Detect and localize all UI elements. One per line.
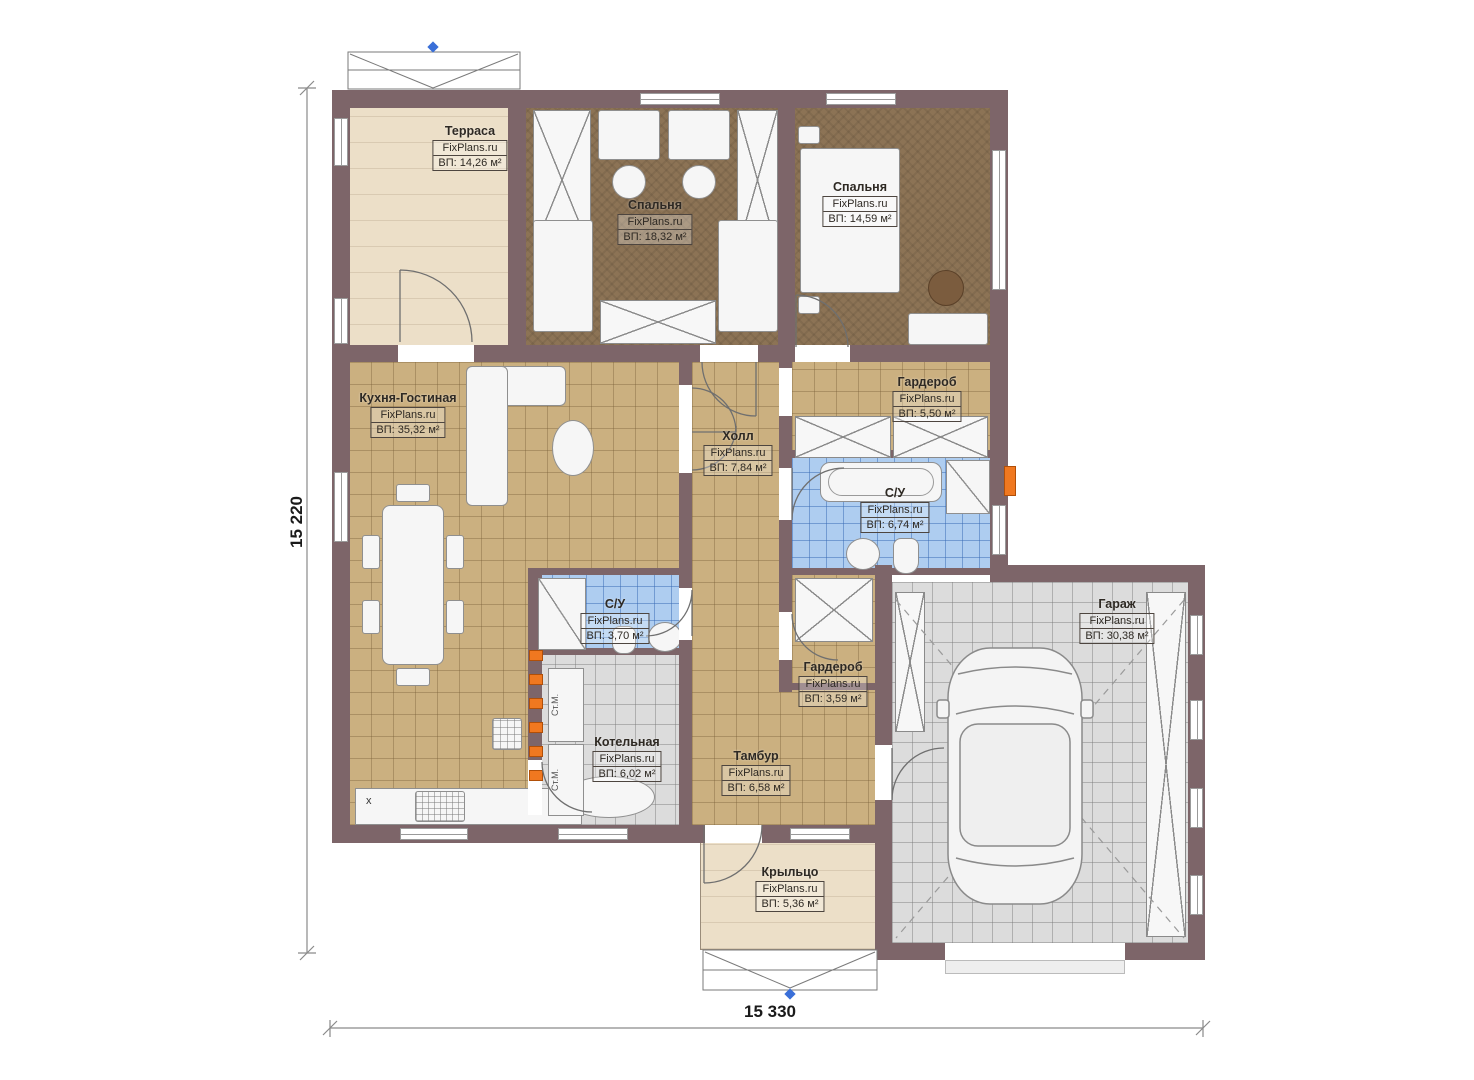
desk-bedroom1-left [598, 110, 660, 160]
door-opening-boiler [528, 760, 542, 815]
desk-bedroom1-right [668, 110, 730, 160]
room-label-vestibule: Тамбур FixPlans.ruВП: 6,58 м² [721, 749, 790, 796]
room-label-bathroom-2: С/У FixPlans.ruВП: 3,70 м² [580, 597, 649, 644]
room-label-terrace: Терраса FixPlans.ruВП: 14,26 м² [432, 124, 507, 171]
closet-wardrobe1-right [893, 416, 988, 458]
dining-chair-top [396, 484, 430, 502]
garage-apron [945, 960, 1125, 974]
sofa-side [466, 366, 508, 506]
door-opening-bath1 [779, 468, 792, 520]
window-bath1-right [992, 505, 1006, 555]
chair-bedroom1-right [682, 165, 716, 199]
room-label-wardrobe-2: Гардероб FixPlans.ruВП: 3,59 м² [798, 660, 867, 707]
dimension-vertical: 15 220 [287, 487, 307, 557]
door-opening-garage-vestibule [875, 745, 892, 800]
toilet-bath1 [893, 538, 919, 574]
window-vestibule-bottom [790, 828, 850, 840]
window-garage-1 [1190, 615, 1203, 655]
room-label-bedroom-2: Спальня FixPlans.ruВП: 14,59 м² [822, 180, 897, 227]
window-terrace-left-1 [334, 118, 348, 166]
nightstand-bedroom2-top [798, 126, 820, 144]
wall-bedroom-divider [778, 107, 795, 362]
door-opening-bedroom2 [795, 345, 850, 362]
nightstand-bedroom2-bottom [798, 296, 820, 314]
washing-machine-label: Ст.М. [550, 748, 582, 812]
coffee-table [552, 420, 594, 476]
counter-mark: х [366, 795, 372, 807]
door-opening-wardrobe1 [779, 368, 792, 416]
window-kitchen-left [334, 472, 348, 542]
closet-wardrobe1-left [795, 416, 891, 458]
dining-chair-r2 [446, 600, 464, 634]
window-bedroom2-top [826, 93, 896, 105]
window-garage-4 [1190, 875, 1203, 915]
wall-terrace-right [508, 90, 526, 362]
dining-table [382, 505, 444, 665]
shower-bath2 [538, 578, 586, 650]
closet-wardrobe2 [795, 578, 873, 642]
chair-bedroom1-left [612, 165, 646, 199]
dining-chair-l1 [362, 535, 380, 569]
garage-door-opening [945, 943, 1125, 960]
radiator-dot [529, 650, 543, 661]
room-label-kitchen-living: Кухня-Гостиная FixPlans.ruВП: 35,32 м² [359, 391, 456, 438]
dresser-bedroom1 [600, 300, 716, 344]
desk-bedroom2 [908, 313, 988, 345]
room-label-bathroom-1: С/У FixPlans.ruВП: 6,74 м² [860, 486, 929, 533]
shower-bath1 [946, 460, 990, 514]
room-label-hall: Холл FixPlans.ruВП: 7,84 м² [703, 429, 772, 476]
dimension-horizontal: 15 330 [725, 1002, 815, 1022]
radiator-dot [529, 674, 543, 685]
radiator-dot [529, 746, 543, 757]
dining-chair-r1 [446, 535, 464, 569]
kitchen-sink [415, 791, 465, 822]
door-opening-porch [705, 825, 762, 843]
wall-garage-top [1008, 565, 1205, 582]
dining-chair-bottom [396, 668, 430, 686]
wall-bath2-top [535, 568, 690, 575]
window-garage-2 [1190, 700, 1203, 740]
door-opening-hall-bedroom1 [700, 345, 758, 362]
garage-shelf-left [895, 592, 925, 732]
room-label-boiler-room: Котельная FixPlans.ruВП: 6,02 м² [592, 735, 661, 782]
room-label-bedroom-1: Спальня FixPlans.ruВП: 18,32 м² [617, 198, 692, 245]
stairs-top [348, 41, 520, 89]
window-bedroom1 [640, 93, 720, 105]
room-label-porch: Крыльцо FixPlans.ruВП: 5,36 м² [755, 865, 824, 912]
stove [492, 718, 522, 750]
floor-plan-sheet: { "plan": { "watermark": "FixPlans.ru", … [0, 0, 1474, 1080]
bed-bedroom1-left [533, 220, 593, 332]
window-bedroom2-right [992, 150, 1006, 290]
door-opening-wardrobe2 [779, 612, 792, 660]
radiator-dot [529, 722, 543, 733]
door-opening-bath2 [679, 588, 692, 640]
bed-bedroom1-right [718, 220, 778, 332]
chair-bedroom2 [928, 270, 964, 306]
stairs-porch [703, 950, 877, 1000]
sink-bath2 [648, 622, 682, 652]
washing-machine-label: Ст.М. [550, 672, 582, 738]
door-opening-kitchen [679, 385, 692, 473]
wall-left [332, 90, 350, 843]
window-boiler-bottom [558, 828, 628, 840]
towel-radiator [1004, 466, 1016, 496]
room-label-garage: Гараж FixPlans.ruВП: 30,38 м² [1079, 597, 1154, 644]
dining-chair-l2 [362, 600, 380, 634]
door-opening-terrace [398, 345, 474, 362]
window-terrace-left-2 [334, 298, 348, 344]
radiator-dot [529, 770, 543, 781]
window-kitchen-bottom [400, 828, 468, 840]
radiator-dot [529, 698, 543, 709]
window-garage-3 [1190, 788, 1203, 828]
room-label-wardrobe-1: Гардероб FixPlans.ruВП: 5,50 м² [892, 375, 961, 422]
